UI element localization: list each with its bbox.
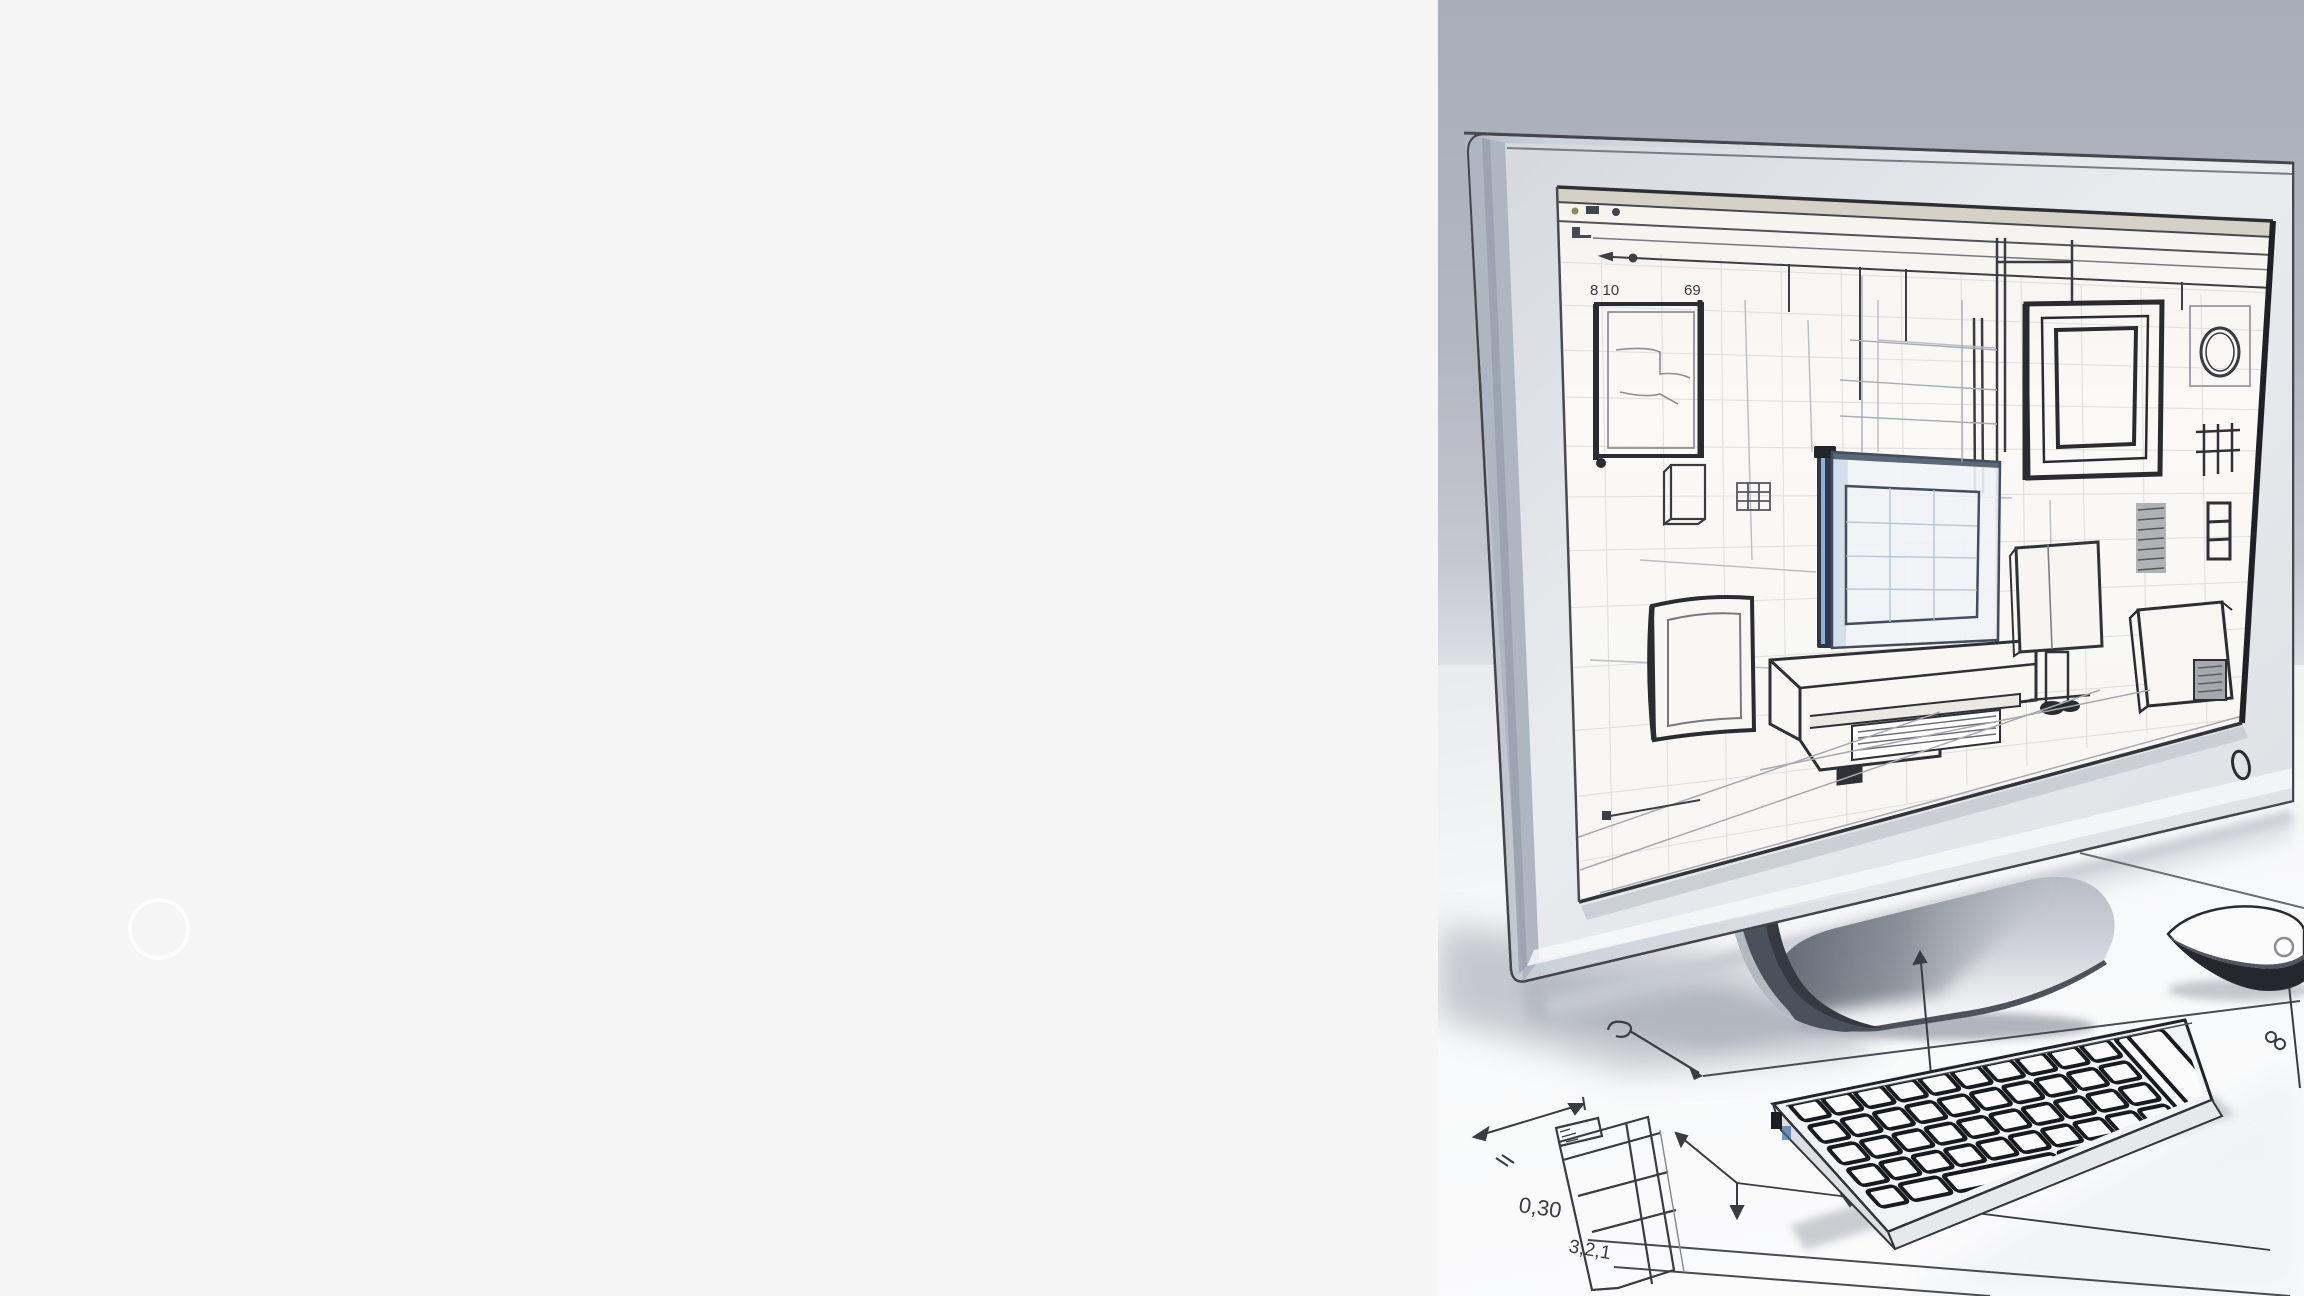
svg-text:69: 69 <box>1684 282 1701 299</box>
svg-text:8 10: 8 10 <box>1590 282 1619 299</box>
